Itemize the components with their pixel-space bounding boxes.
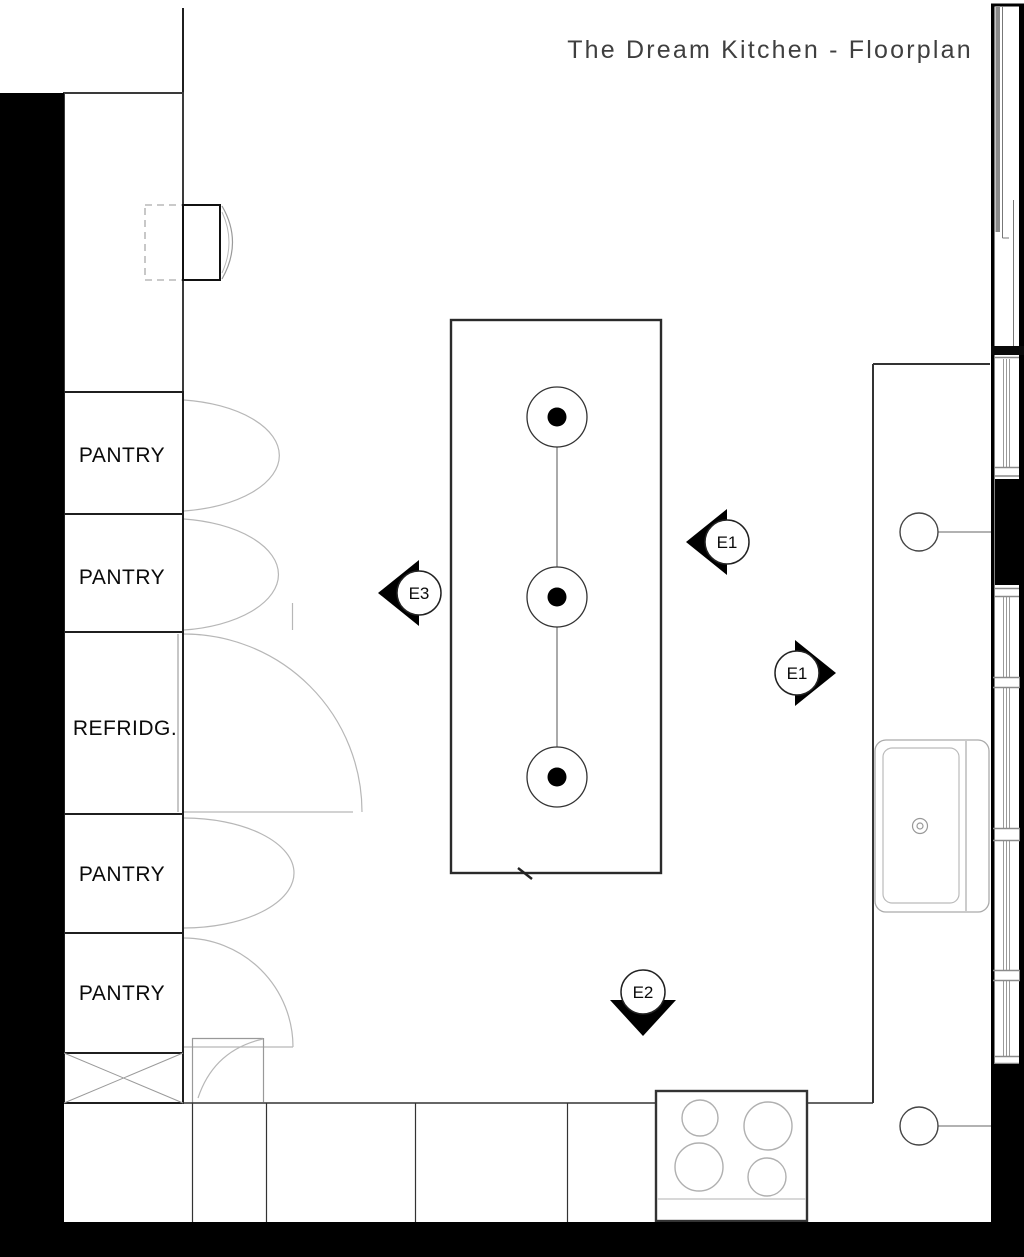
light-dot: [548, 768, 567, 787]
marker-label: E1: [787, 664, 808, 683]
ceiling-light-icon: [527, 747, 587, 807]
wall-inner-line: [991, 4, 995, 1222]
ceiling-light-icon: [527, 567, 587, 627]
marker-label: E1: [717, 533, 738, 552]
left-wall: [0, 93, 64, 1257]
window-transom: [995, 971, 1020, 980]
cabinet-column: [64, 93, 183, 1103]
wall-segment: [991, 1064, 1024, 1224]
bottom-wall: [0, 1222, 1024, 1257]
stove-outline: [656, 1091, 807, 1221]
light-dot: [548, 588, 567, 607]
light-ring: [900, 513, 938, 551]
light-dot: [548, 408, 567, 427]
stove: [656, 1091, 807, 1221]
wall-segment: [991, 346, 1024, 355]
cabinet-label: PANTRY: [79, 982, 165, 1005]
window-transom: [995, 678, 1020, 687]
window-transom: [995, 829, 1020, 840]
cabinet-label: PANTRY: [79, 444, 165, 467]
drawing-title: The Dream Kitchen - Floorplan: [567, 36, 973, 64]
tall-cabinet-box: [64, 93, 183, 392]
oven-solid-box: [183, 205, 220, 280]
floorplan-drawing: The Dream Kitchen - Floorplan PANTRY: [0, 0, 1024, 1257]
kitchen-island: [451, 320, 661, 879]
cabinet-label: PANTRY: [79, 863, 165, 886]
sink-outer: [875, 740, 989, 912]
wall-segment: [995, 479, 1020, 585]
floorplan-canvas: The Dream Kitchen - Floorplan PANTRY: [0, 0, 1024, 1257]
light-ring: [900, 1107, 938, 1145]
sink-icon: [875, 740, 989, 912]
cabinet-label: PANTRY: [79, 566, 165, 589]
wall-detail-band: [996, 6, 1001, 232]
cabinet-label: REFRIDG.: [73, 717, 177, 740]
ceiling-light-icon: [527, 387, 587, 447]
marker-label: E2: [633, 983, 654, 1002]
marker-label: E3: [409, 584, 430, 603]
